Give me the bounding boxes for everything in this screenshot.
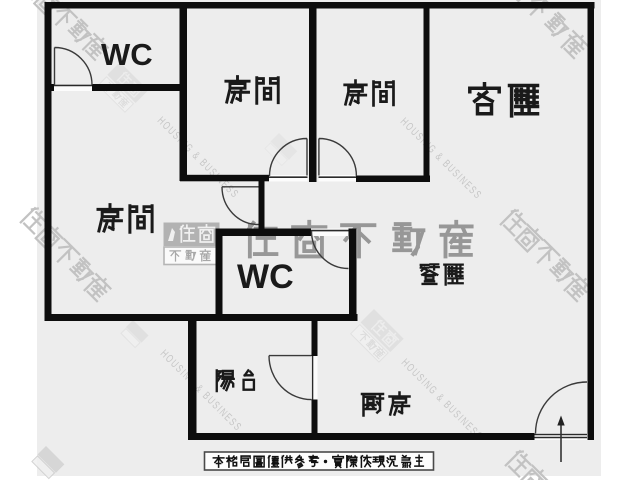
svg-text:WC: WC [101, 37, 153, 72]
svg-text:WC: WC [237, 258, 294, 296]
